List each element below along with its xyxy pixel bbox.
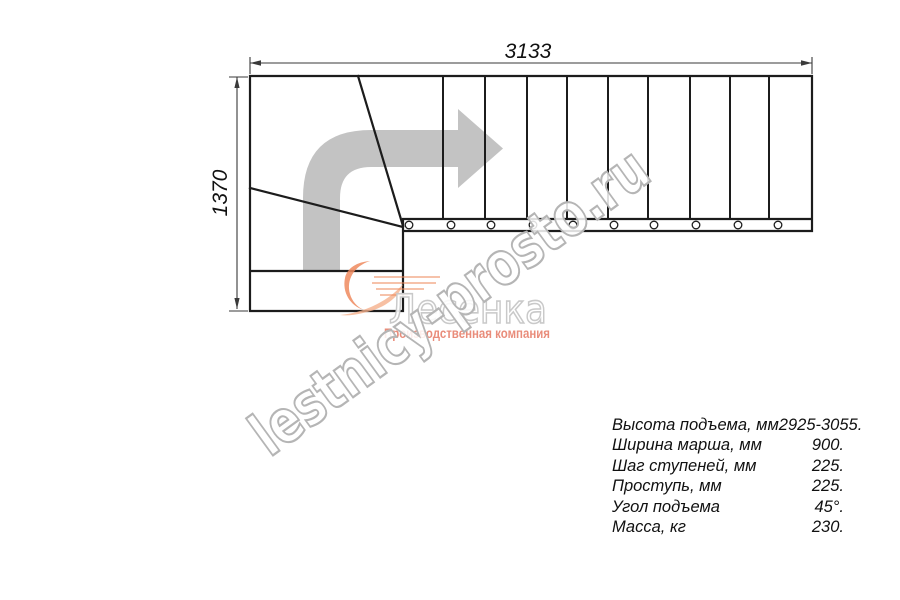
spec-row-mass: Масса, кг 230. bbox=[612, 517, 844, 537]
spec-label: Масса, кг bbox=[612, 517, 686, 537]
spec-value: 230. bbox=[812, 517, 844, 537]
spec-label: Угол подъема bbox=[612, 497, 720, 517]
spec-value: 2925-3055. bbox=[779, 415, 863, 435]
watermark: lestnicy-prosto.ru bbox=[237, 134, 662, 470]
spec-value: 225. bbox=[812, 456, 844, 476]
specs-table: Высота подъема, мм 2925-3055. Ширина мар… bbox=[612, 415, 844, 537]
spec-value: 45°. bbox=[814, 497, 844, 517]
watermark-text: lestnicy-prosto.ru bbox=[237, 134, 662, 470]
spec-value: 225. bbox=[812, 476, 844, 496]
spec-row-step-pitch: Шаг ступеней, мм 225. bbox=[612, 456, 844, 476]
dimension-line-top: 3133 bbox=[250, 40, 812, 74]
spec-row-tread: Проступь, мм 225. bbox=[612, 476, 844, 496]
spec-label: Шаг ступеней, мм bbox=[612, 456, 756, 476]
dimension-label-width: 1370 bbox=[209, 169, 232, 216]
spec-label: Проступь, мм bbox=[612, 476, 722, 496]
spec-row-height: Высота подъема, мм 2925-3055. bbox=[612, 415, 844, 435]
dimension-line-left: 1370 bbox=[209, 77, 248, 311]
staircase-drawing-page: 3133 1370 Лесенка Производственная компа… bbox=[0, 0, 900, 600]
spec-row-flight-width: Ширина марша, мм 900. bbox=[612, 435, 844, 455]
spec-row-angle: Угол подъема 45°. bbox=[612, 497, 844, 517]
spec-value: 900. bbox=[812, 435, 844, 455]
spec-label: Высота подъема, мм bbox=[612, 415, 779, 435]
spec-label: Ширина марша, мм bbox=[612, 435, 762, 455]
dimension-label-length: 3133 bbox=[505, 40, 552, 63]
